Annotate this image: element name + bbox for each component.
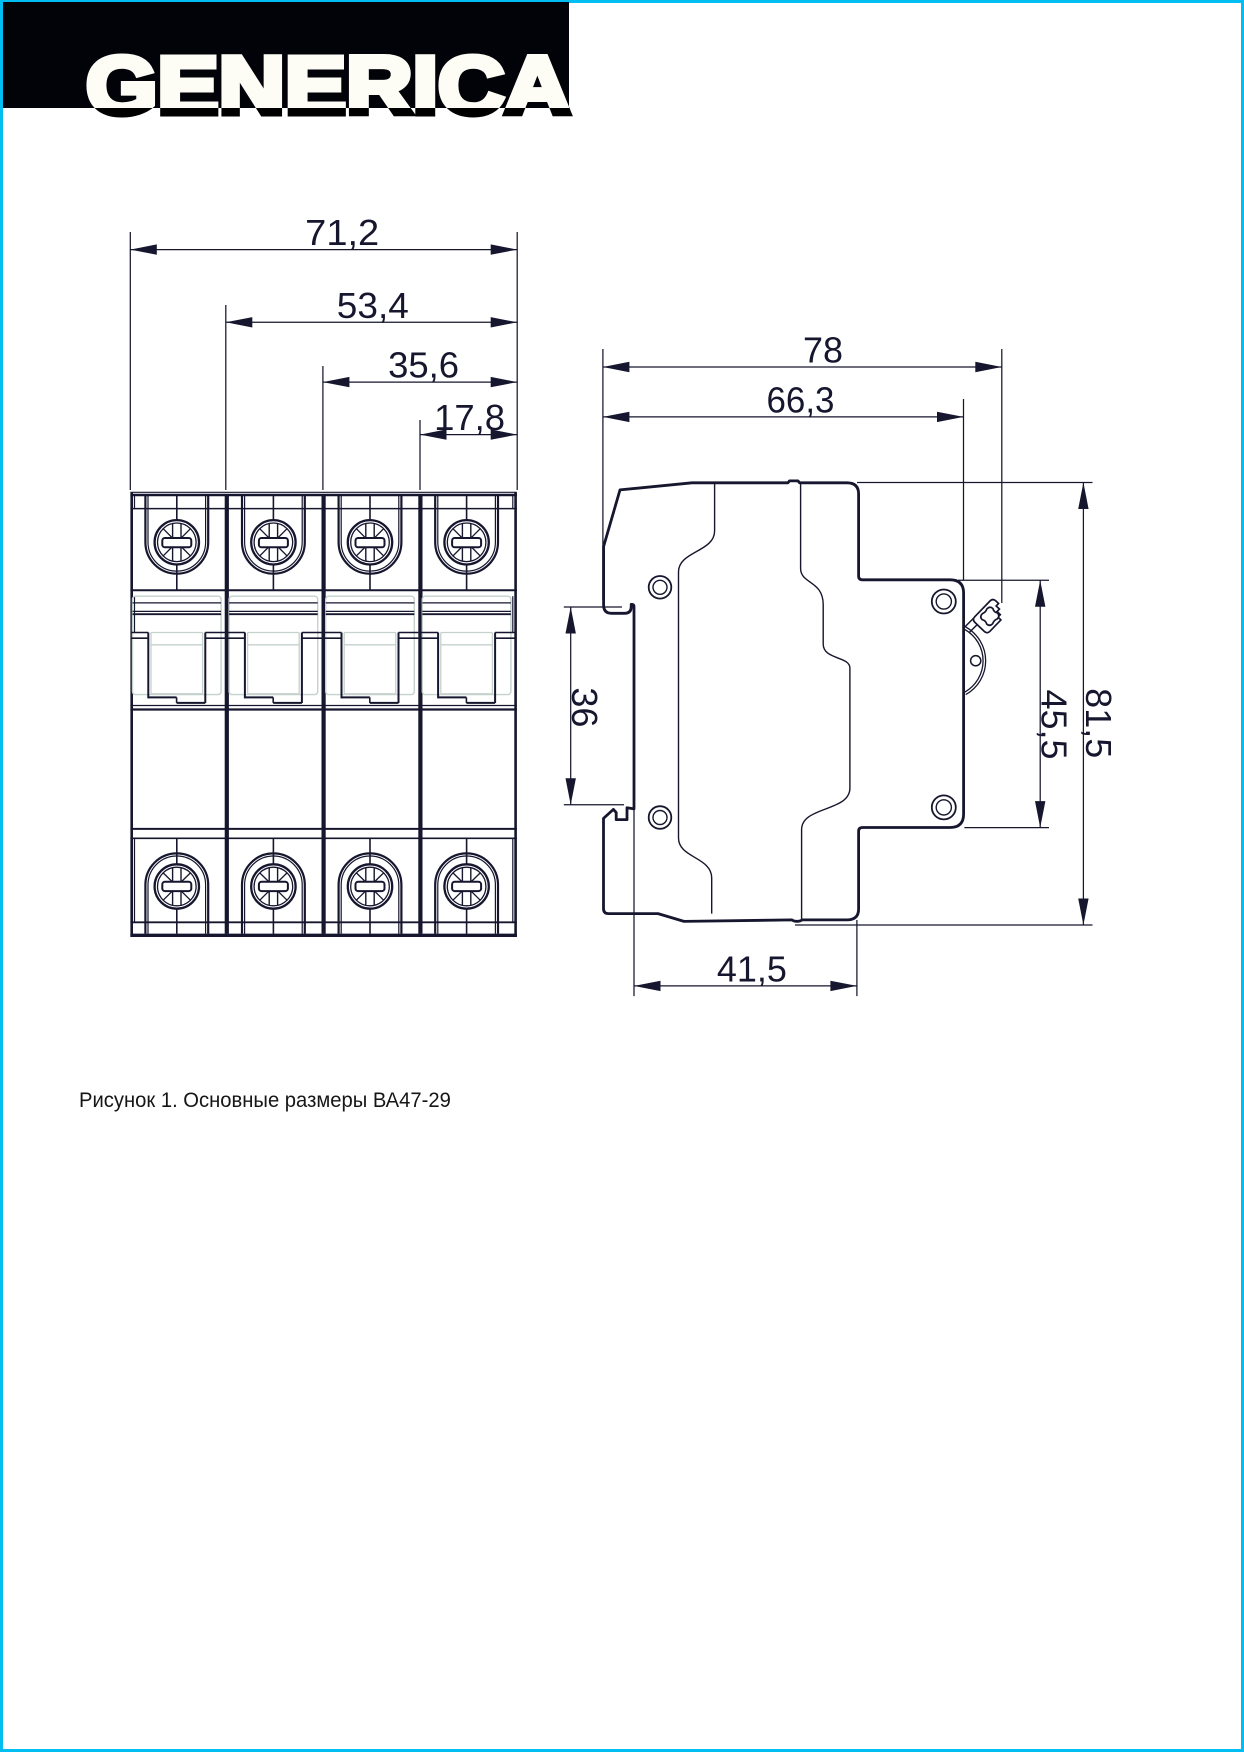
svg-text:78: 78 <box>803 330 843 371</box>
svg-text:17,8: 17,8 <box>434 397 505 438</box>
svg-text:45,5: 45,5 <box>1034 689 1075 759</box>
svg-text:36: 36 <box>564 687 605 727</box>
svg-text:53,4: 53,4 <box>337 285 409 326</box>
svg-text:81,5: 81,5 <box>1078 688 1119 758</box>
svg-text:35,6: 35,6 <box>388 345 459 386</box>
svg-text:66,3: 66,3 <box>767 379 835 420</box>
svg-text:71,2: 71,2 <box>305 212 379 253</box>
svg-text:41,5: 41,5 <box>717 948 787 989</box>
